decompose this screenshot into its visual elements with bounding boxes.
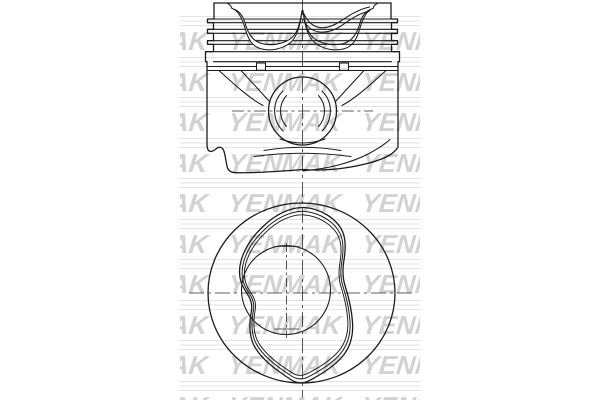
piston-drawing-image: YENMAK YENMAK YENMAK YENMAK YENMAK YENMA… — [180, 0, 420, 400]
combustion-bowl-contour — [240, 207, 353, 382]
piston-diagram-svg — [180, 0, 420, 400]
valve-recess-circle — [242, 246, 331, 335]
centerlines — [189, 0, 414, 398]
screenshot-canvas: YENMAK YENMAK YENMAK YENMAK YENMAK YENMA… — [0, 0, 600, 400]
